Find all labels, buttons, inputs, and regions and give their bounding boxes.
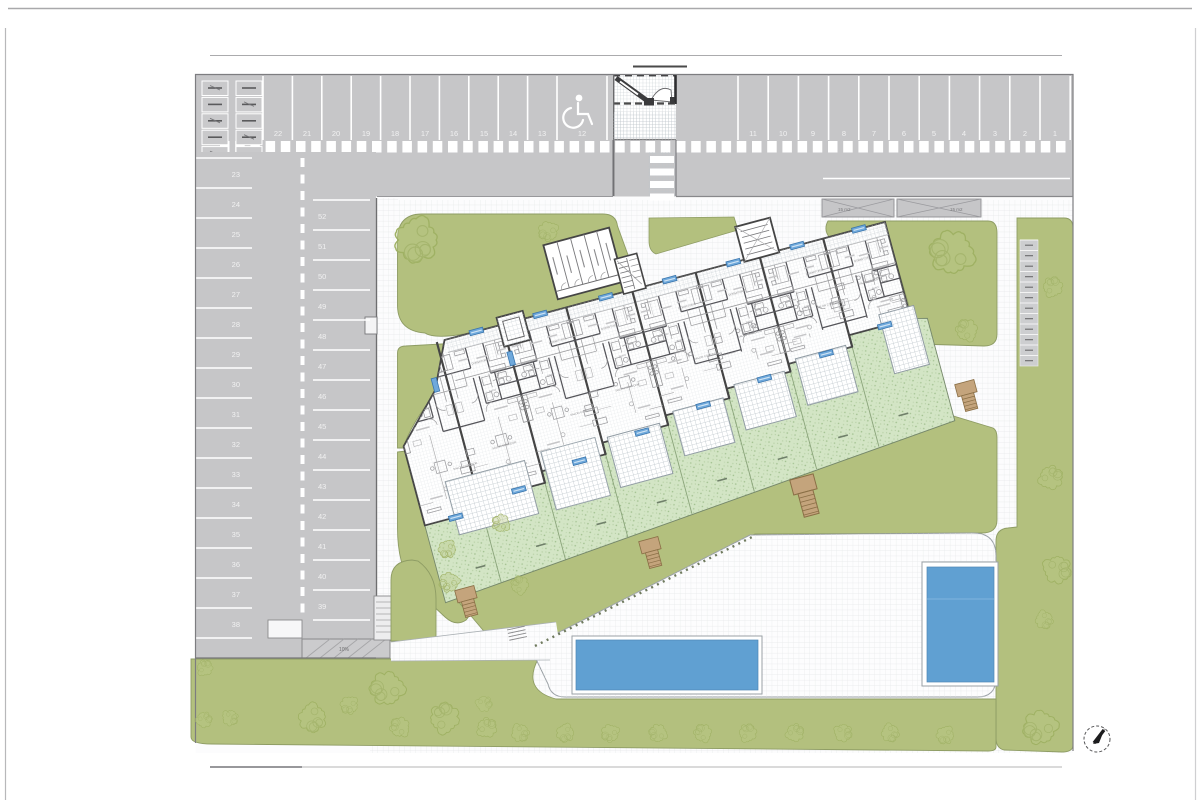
svg-text:7: 7 <box>872 129 876 138</box>
svg-text:36: 36 <box>232 560 240 569</box>
svg-text:24: 24 <box>232 200 240 209</box>
svg-text:20: 20 <box>332 129 340 138</box>
svg-text:43: 43 <box>318 482 326 491</box>
svg-text:31: 31 <box>232 410 240 419</box>
svg-text:6: 6 <box>902 129 906 138</box>
svg-text:51: 51 <box>318 242 326 251</box>
svg-text:38: 38 <box>232 620 240 629</box>
svg-text:9: 9 <box>811 129 815 138</box>
svg-text:34: 34 <box>232 500 240 509</box>
svg-text:10: 10 <box>779 129 787 138</box>
svg-text:49: 49 <box>318 302 326 311</box>
svg-text:18: 18 <box>391 129 399 138</box>
svg-text:15 m2: 15 m2 <box>950 207 963 212</box>
svg-text:50: 50 <box>318 272 326 281</box>
svg-text:26: 26 <box>232 260 240 269</box>
svg-text:8: 8 <box>842 129 846 138</box>
svg-text:19: 19 <box>362 129 370 138</box>
svg-text:32: 32 <box>232 440 240 449</box>
svg-text:10%: 10% <box>339 647 350 653</box>
svg-text:27: 27 <box>232 290 240 299</box>
svg-text:1: 1 <box>1053 129 1057 138</box>
svg-text:39: 39 <box>318 602 326 611</box>
svg-text:13: 13 <box>538 129 546 138</box>
svg-text:29: 29 <box>232 350 240 359</box>
svg-text:2: 2 <box>1023 129 1027 138</box>
svg-text:25: 25 <box>232 230 240 239</box>
svg-text:14: 14 <box>509 129 517 138</box>
svg-text:28: 28 <box>232 320 240 329</box>
svg-text:21: 21 <box>303 129 311 138</box>
svg-text:11: 11 <box>749 129 757 138</box>
svg-text:41: 41 <box>318 542 326 551</box>
svg-text:23: 23 <box>232 170 240 179</box>
svg-text:35: 35 <box>232 530 240 539</box>
svg-text:33: 33 <box>232 470 240 479</box>
svg-text:22: 22 <box>274 129 282 138</box>
svg-text:4: 4 <box>962 129 966 138</box>
svg-text:17: 17 <box>421 129 429 138</box>
svg-text:37: 37 <box>232 590 240 599</box>
svg-text:15 m2: 15 m2 <box>838 207 851 212</box>
svg-text:5: 5 <box>932 129 936 138</box>
svg-text:46: 46 <box>318 392 326 401</box>
svg-text:47: 47 <box>318 362 326 371</box>
svg-text:48: 48 <box>318 332 326 341</box>
svg-text:16: 16 <box>450 129 458 138</box>
svg-text:3: 3 <box>993 129 997 138</box>
svg-text:40: 40 <box>318 572 326 581</box>
svg-text:45: 45 <box>318 422 326 431</box>
svg-text:30: 30 <box>232 380 240 389</box>
svg-text:42: 42 <box>318 512 326 521</box>
svg-text:44: 44 <box>318 452 326 461</box>
svg-text:15: 15 <box>480 129 488 138</box>
svg-text:12: 12 <box>578 129 586 138</box>
svg-text:52: 52 <box>318 212 326 221</box>
